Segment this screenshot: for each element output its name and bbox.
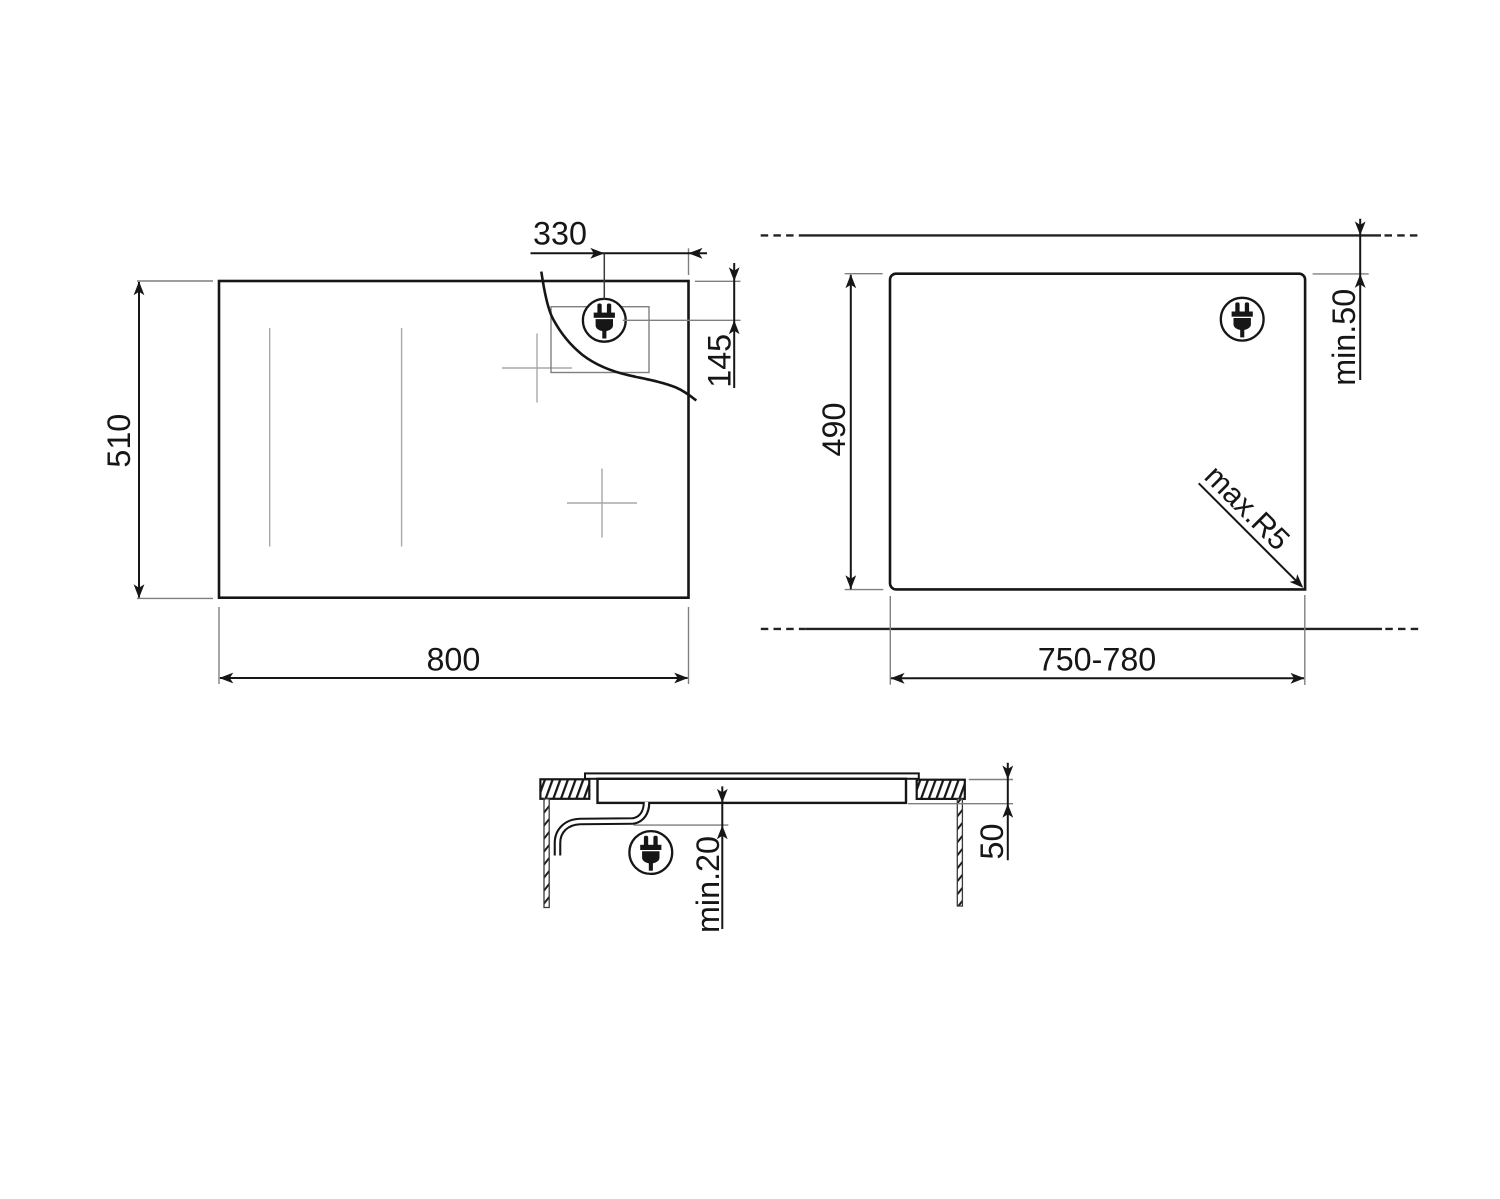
svg-text:490: 490: [816, 403, 852, 457]
svg-text:510: 510: [101, 414, 137, 468]
svg-text:145: 145: [702, 334, 738, 388]
svg-text:50: 50: [974, 824, 1010, 860]
svg-text:800: 800: [426, 642, 480, 678]
svg-text:330: 330: [533, 216, 587, 252]
svg-text:750-780: 750-780: [1038, 642, 1157, 678]
svg-text:min.50: min.50: [1326, 289, 1362, 386]
svg-text:min.20: min.20: [690, 836, 726, 933]
